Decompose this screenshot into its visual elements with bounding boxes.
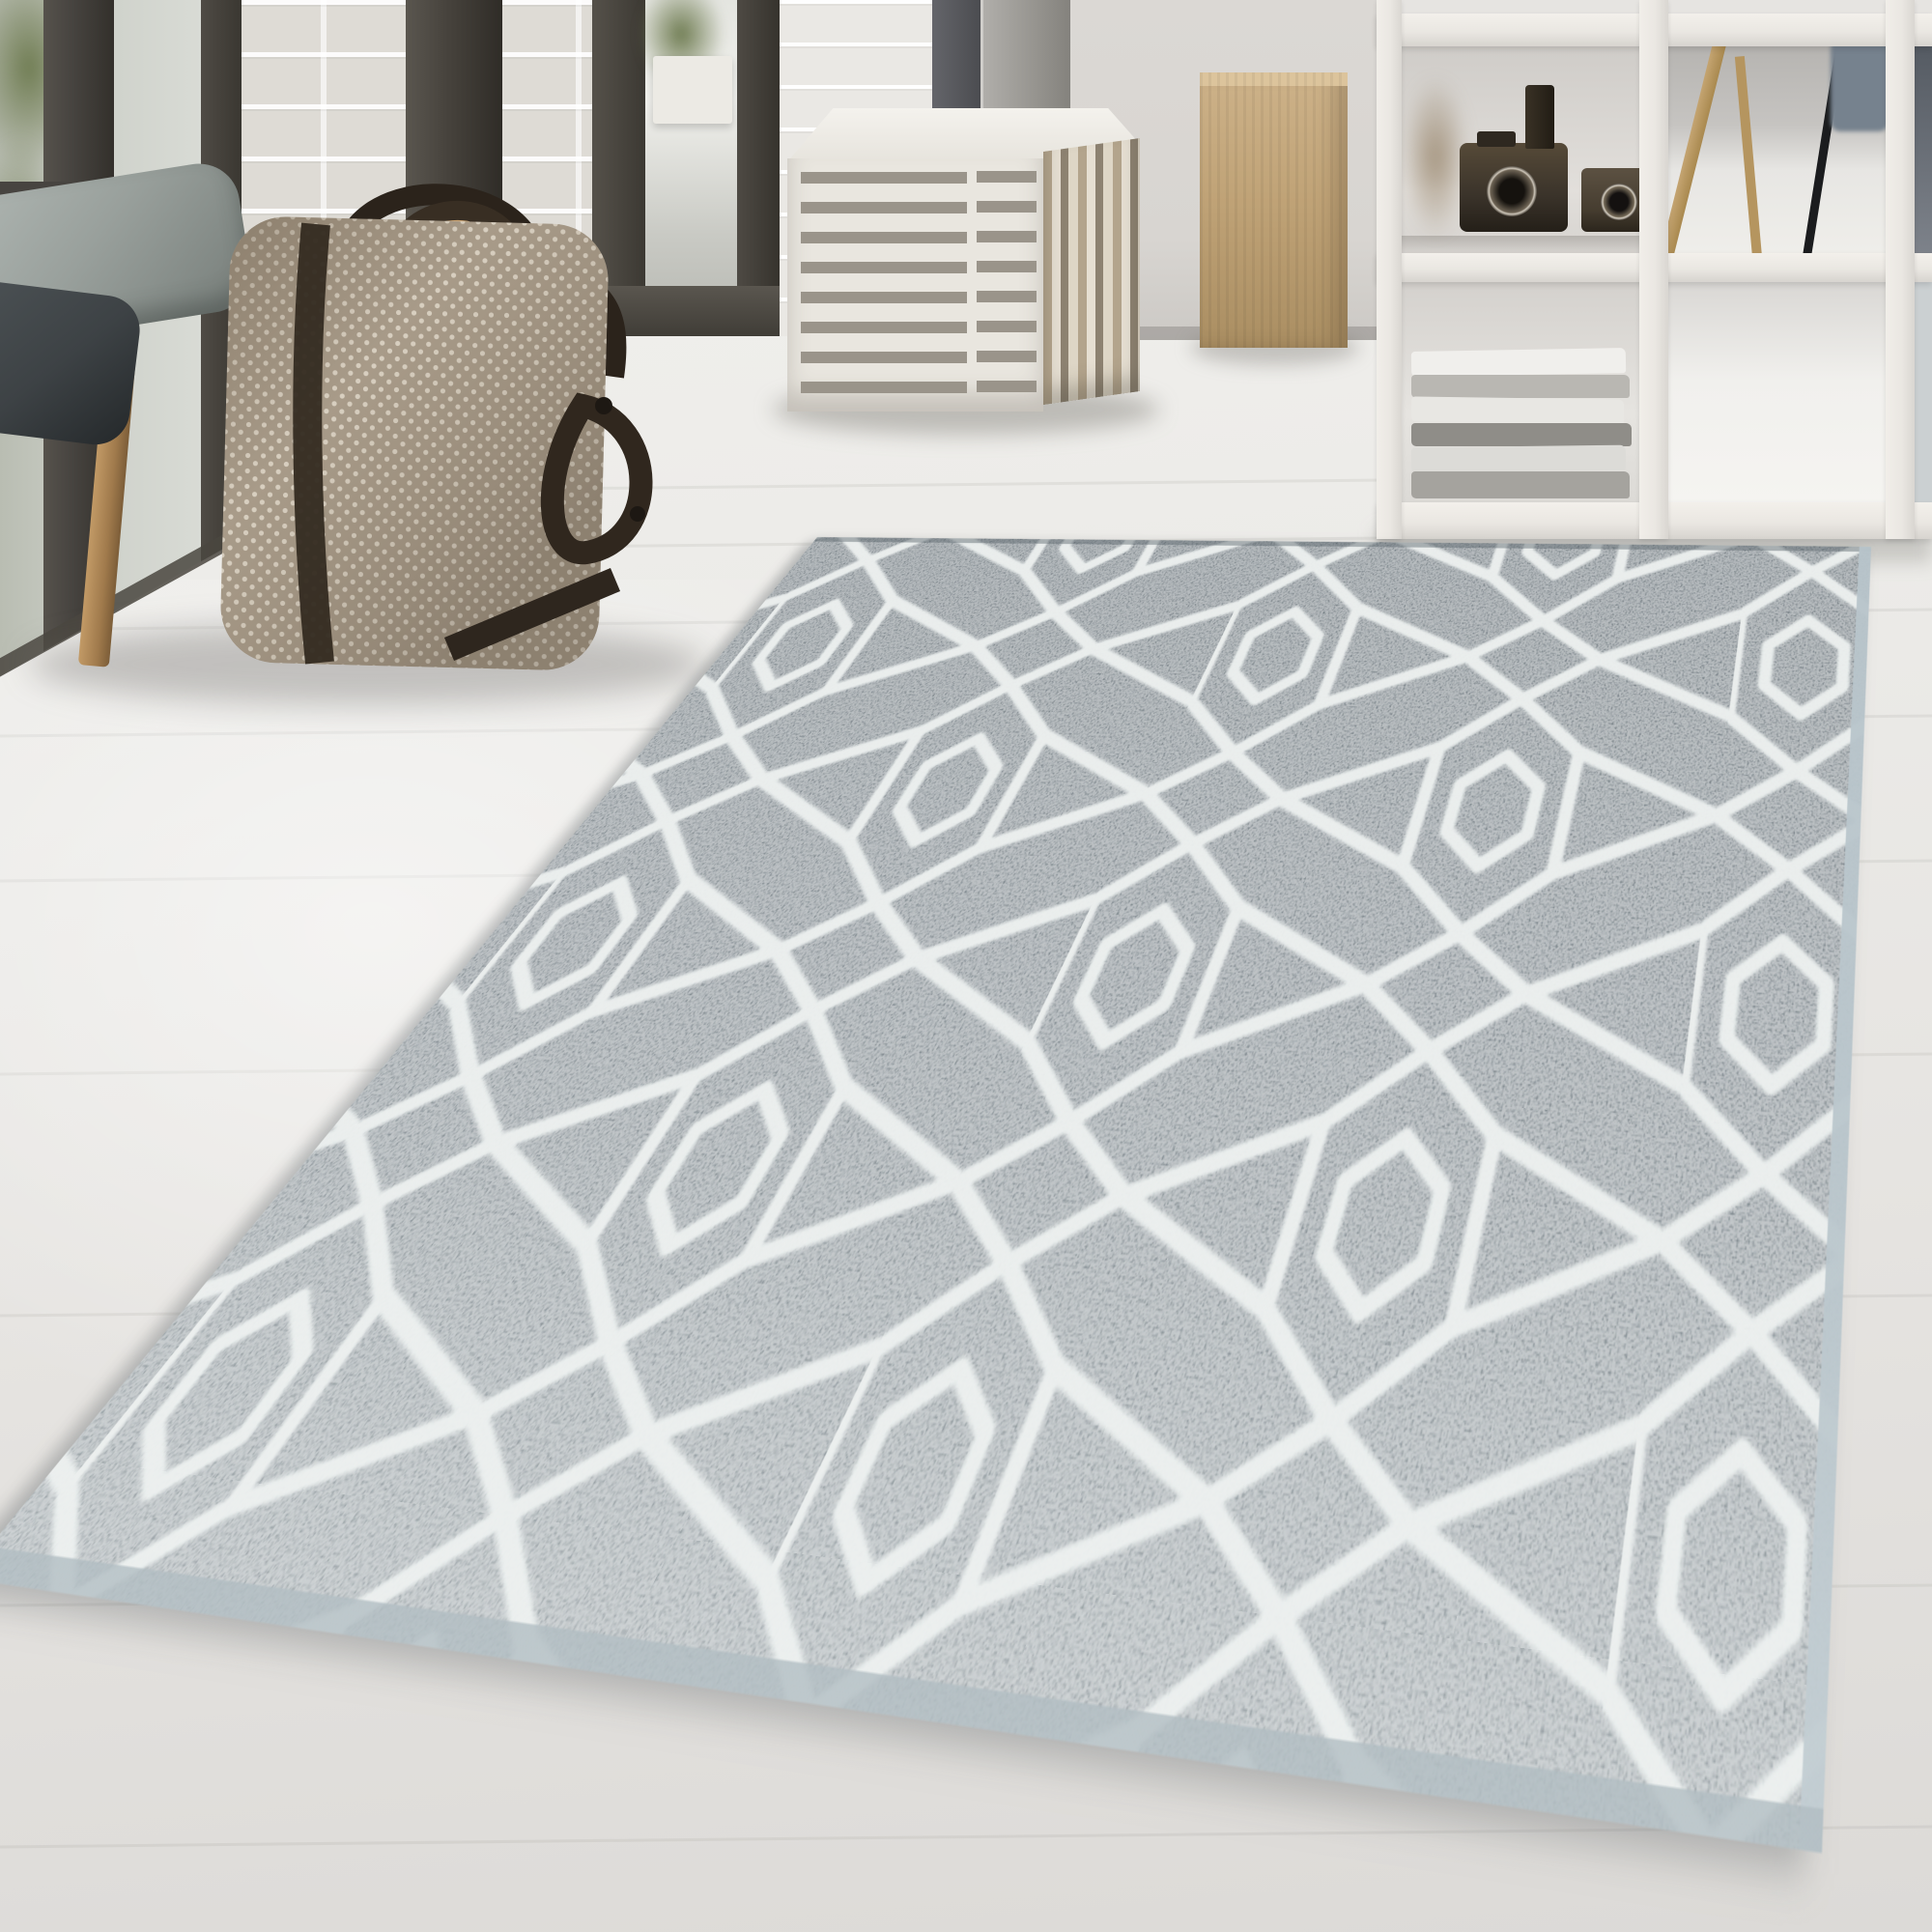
cube-shelf-unit [1377,0,1932,539]
magazine [1411,396,1624,424]
magazine [1411,445,1626,473]
bottle [1525,85,1554,149]
shelf-cell-cameras [1402,46,1639,253]
shelf-rail [1886,0,1915,539]
striped-pouf-side [1043,138,1140,405]
white-planter [653,56,732,124]
tan-pouf-texture [1200,72,1348,348]
camera-lens [1487,166,1537,216]
striped-pouf-front [787,158,1043,412]
pouf-stripes [801,172,967,400]
magazine [1411,423,1632,446]
easel-leg [1735,56,1762,259]
pouf-stripes [977,162,1037,400]
magazine [1411,348,1626,377]
dark-cushion [0,277,144,449]
weekender-bag [198,116,700,696]
shelf-cell-empty [1668,282,1886,502]
shelf-cell-edge [1915,282,1932,502]
camera-knob [1477,131,1516,147]
shelf-cell-open [1668,46,1886,253]
shelf-rail [1639,0,1668,539]
shelf-cell-edge [1915,46,1932,253]
easel-leg [1659,43,1726,263]
magazine [1411,471,1630,498]
shelf-rail [1377,0,1402,539]
room-scene [0,0,1932,1932]
magazine [1411,375,1630,398]
camera-lens [1601,184,1637,220]
chair-back [1831,39,1889,131]
shelf-inner-shadow [1402,236,1639,253]
shelf-cell-magazines [1402,282,1639,502]
